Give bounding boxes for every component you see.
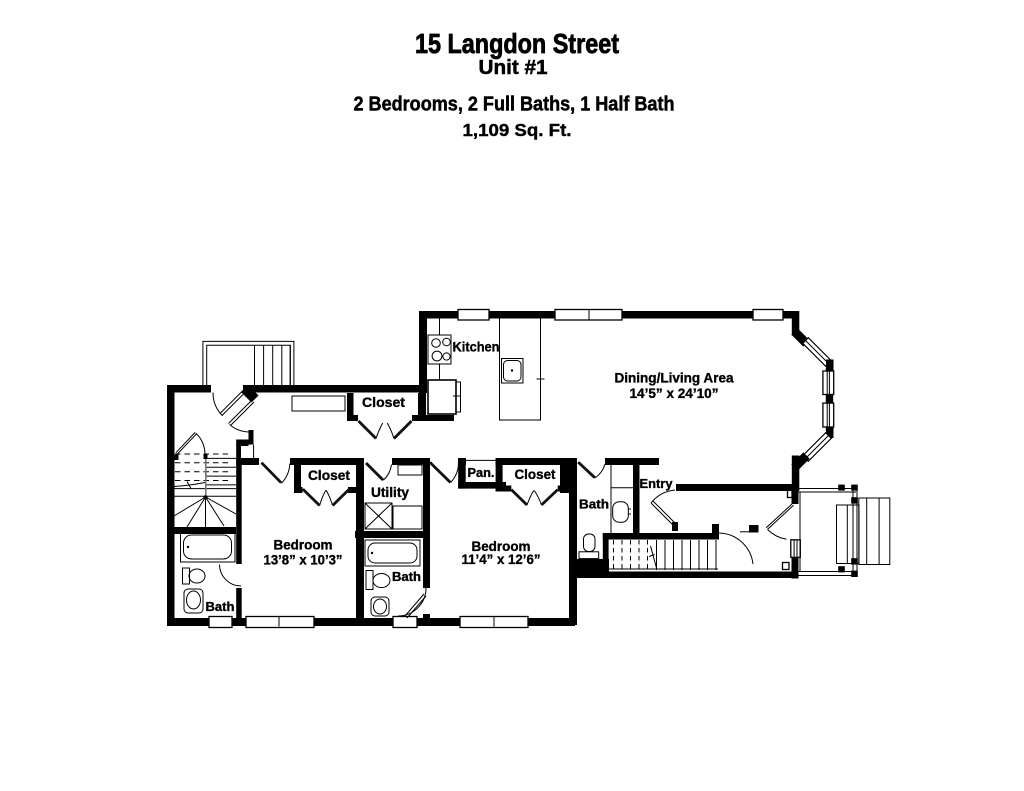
svg-text:Closet: Closet (308, 467, 350, 483)
svg-text:Closet: Closet (515, 466, 556, 482)
svg-text:14’5” x 24’10”: 14’5” x 24’10” (630, 385, 719, 401)
svg-text:15 Langdon Street: 15 Langdon Street (415, 28, 619, 59)
svg-text:Entry: Entry (640, 476, 674, 491)
svg-text:2 Bedrooms, 2 Full Baths, 1 Ha: 2 Bedrooms, 2 Full Baths, 1 Half Bath (354, 94, 675, 116)
svg-text:Bedroom: Bedroom (274, 537, 333, 553)
svg-text:Bath: Bath (206, 599, 235, 614)
svg-text:13’8” x 10’3”: 13’8” x 10’3” (264, 551, 343, 567)
svg-text:Pan.: Pan. (468, 465, 495, 480)
svg-text:11’4” x 12’6”: 11’4” x 12’6” (462, 551, 541, 567)
svg-text:Dining/Living Area: Dining/Living Area (615, 370, 734, 386)
svg-text:Closet: Closet (362, 394, 405, 410)
svg-text:Unit #1: Unit #1 (479, 57, 548, 79)
svg-text:Utility: Utility (371, 484, 409, 500)
svg-text:Bath: Bath (579, 496, 609, 511)
svg-text:Kitchen: Kitchen (453, 339, 500, 355)
svg-text:1,109 Sq. Ft.: 1,109 Sq. Ft. (463, 120, 572, 140)
svg-text:Bath: Bath (392, 569, 421, 584)
